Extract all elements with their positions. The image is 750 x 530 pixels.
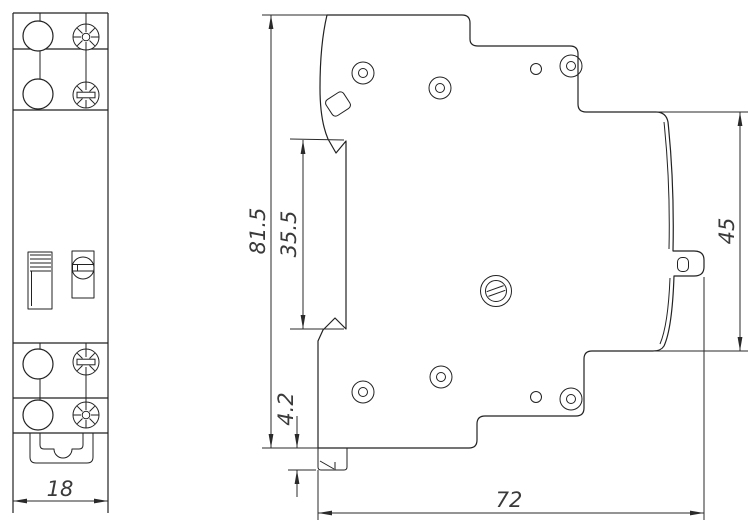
dim-label-front-width: 18 xyxy=(47,477,74,501)
dim-label-foot-offset: 4.2 xyxy=(274,392,298,425)
dimension-arrows xyxy=(13,15,742,515)
extension-lines xyxy=(262,15,748,520)
rivet-icon xyxy=(430,366,452,388)
wire-hole xyxy=(23,400,53,430)
terminal-screw-icon xyxy=(73,24,99,50)
wire-hole xyxy=(23,349,53,379)
technical-drawing-canvas: 81.5 35.5 4.2 45 72 18 xyxy=(0,0,750,530)
back-edge-inner-line xyxy=(660,122,670,344)
technical-drawing: 81.5 35.5 4.2 45 72 18 xyxy=(0,0,750,530)
din-foot-side xyxy=(318,448,347,470)
dim-label-depth: 72 xyxy=(496,488,523,512)
wire-hole xyxy=(23,21,53,51)
terminal-screw-icon xyxy=(73,82,99,108)
center-screw-icon xyxy=(481,276,512,307)
clip-knob-detail xyxy=(678,258,689,272)
rivet-icon xyxy=(560,55,582,77)
toggle-switch-icon xyxy=(28,252,52,309)
rotary-selector-icon xyxy=(72,251,94,298)
latch-window xyxy=(324,90,352,117)
terminal-screw-icon xyxy=(73,402,99,428)
din-foot-front xyxy=(30,433,93,463)
pin-hole xyxy=(531,392,542,403)
rivet-icon xyxy=(560,388,582,410)
side-view-outline xyxy=(318,15,704,448)
pin-hole xyxy=(531,64,542,75)
front-view xyxy=(13,13,108,513)
dim-label-recess-height: 35.5 xyxy=(277,211,301,258)
dim-label-rail-height: 45 xyxy=(715,218,739,245)
rivet-icon xyxy=(352,381,374,403)
dimension-lines xyxy=(13,15,740,513)
dim-label-overall-height: 81.5 xyxy=(246,208,270,255)
terminal-screw-icon xyxy=(73,349,99,375)
rivet-icon xyxy=(352,62,374,84)
wire-hole xyxy=(23,79,53,109)
rivet-icon xyxy=(429,77,451,99)
dimensions: 81.5 35.5 4.2 45 72 18 xyxy=(13,15,748,520)
side-view xyxy=(318,15,704,470)
